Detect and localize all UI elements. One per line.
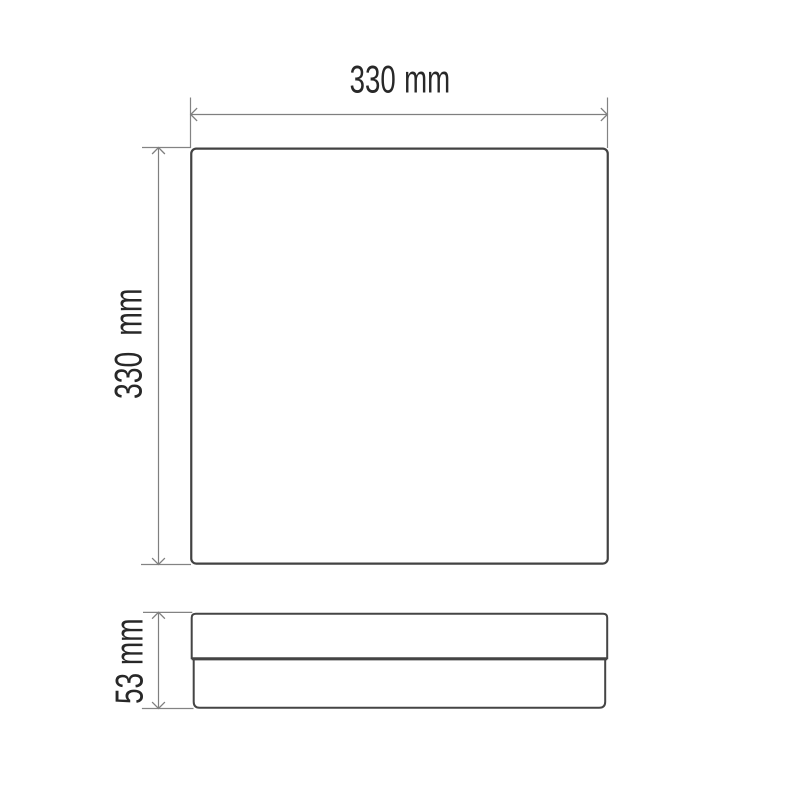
svg-text:330 mm: 330 mm: [108, 289, 151, 400]
svg-text:53 mm: 53 mm: [109, 619, 152, 705]
svg-text:330 mm: 330 mm: [350, 59, 451, 102]
